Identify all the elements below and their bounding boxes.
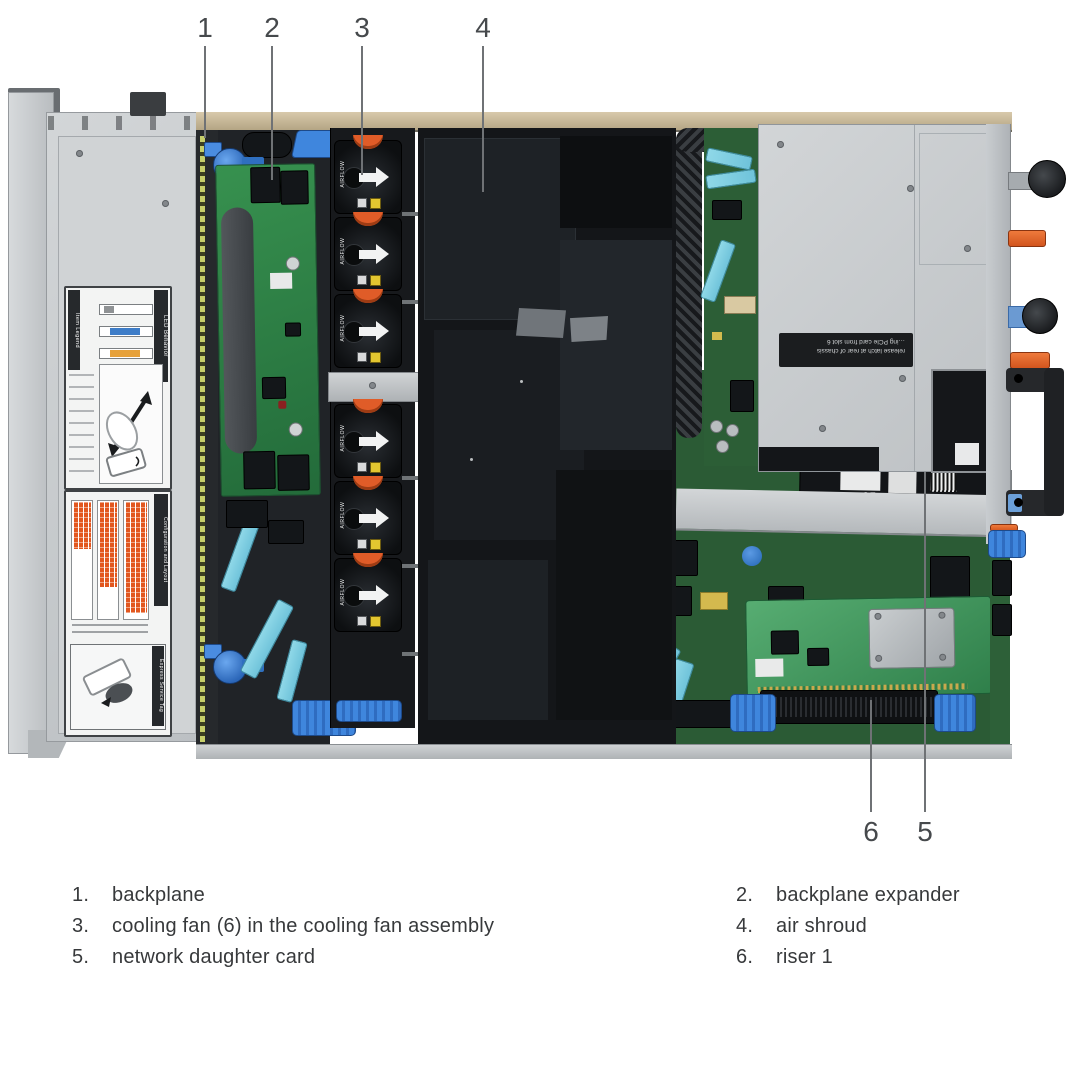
leader-line-1 <box>204 46 206 138</box>
legend-number: 5. <box>72 946 112 969</box>
item-legend-title: Item Legend <box>74 313 80 348</box>
sas-connector <box>243 451 276 490</box>
board-standoff-blue <box>742 546 762 566</box>
cage-screw <box>964 245 971 252</box>
heatsink-screw <box>938 612 945 619</box>
component <box>712 332 722 340</box>
legend-left-column: 1. backplane 3. cooling fan (6) in the c… <box>72 884 494 969</box>
cage-seam <box>914 125 915 471</box>
card-screw <box>286 256 300 270</box>
cage-instruction-line1: release latch at rear of chassis <box>787 346 905 355</box>
capacitor <box>716 440 729 453</box>
airflow-arrowhead-icon <box>376 508 389 528</box>
handle-screw <box>1014 498 1023 507</box>
cage-screw <box>777 141 784 148</box>
info-label-led-behavior: LED Behavior Item Legend <box>64 286 172 490</box>
riser-cage-latch <box>988 530 1026 558</box>
warning-label <box>370 275 381 286</box>
cooling-fan-5: AIRFLOW <box>334 481 402 555</box>
item-legend-header: Item Legend <box>68 290 80 370</box>
cooling-fan-4: AIRFLOW <box>334 404 402 478</box>
info-label <box>357 616 367 626</box>
connector-block <box>712 200 742 220</box>
storage-controller-card <box>745 596 993 698</box>
legend-number: 4. <box>736 915 776 938</box>
chipset <box>930 556 970 600</box>
leader-line-3 <box>361 46 363 175</box>
airflow-label: AIRFLOW <box>340 231 346 271</box>
sas-connector <box>277 454 310 491</box>
legend-number: 6. <box>736 946 776 969</box>
shroud-dot <box>470 458 473 461</box>
legend-item-4: 4. air shroud <box>736 915 960 938</box>
config-layout-header: Configuration and Layout <box>154 494 168 606</box>
backplane-expander-card <box>215 163 321 497</box>
slot-pins <box>765 697 933 717</box>
riser-bay-opening <box>931 369 991 473</box>
fan-release-latch <box>353 553 383 567</box>
service-tag-art <box>71 645 151 727</box>
power-connector <box>700 592 728 610</box>
shroud-clip <box>516 308 566 338</box>
warning-label <box>370 616 381 627</box>
shroud-panel <box>560 136 672 228</box>
psu-handle-knob <box>1022 298 1058 334</box>
fan-release-latch <box>353 399 383 413</box>
callout-number-2: 2 <box>264 12 280 44</box>
legend-text: backplane expander <box>776 884 960 907</box>
fan-release-latch <box>353 476 383 490</box>
rear-port <box>992 560 1012 596</box>
board-cable <box>705 169 756 190</box>
callout-number-5: 5 <box>917 816 933 848</box>
fan-release-latch <box>353 289 383 303</box>
cage-screw <box>899 375 906 382</box>
cooling-fan-6: AIRFLOW <box>334 558 402 632</box>
heatsink-screw <box>939 654 946 661</box>
drive-config-dots <box>73 502 91 549</box>
rear-port <box>992 604 1012 636</box>
legend-text: backplane <box>112 884 205 907</box>
cooling-fan-2: AIRFLOW <box>334 217 402 291</box>
connector-block <box>268 520 304 544</box>
fan-cage-bracket <box>328 372 422 402</box>
board-connector <box>724 296 756 314</box>
shroud-panel <box>428 560 548 720</box>
cooling-fan-1: AIRFLOW <box>334 140 402 214</box>
riser-1-slot <box>760 690 938 724</box>
ic-chip <box>771 630 799 654</box>
ndc-label <box>888 471 916 493</box>
led-segment-blue <box>110 328 140 335</box>
legend-item-2: 2. backplane expander <box>736 884 960 907</box>
legend-text: air shroud <box>776 915 867 938</box>
warning-label <box>370 462 381 473</box>
card-label <box>270 273 292 289</box>
heatsink-screw <box>875 655 882 662</box>
riser-release-latch <box>934 694 976 732</box>
panel-top-screw-row <box>48 116 200 130</box>
sas-connector <box>250 167 281 204</box>
handle-screw <box>1014 374 1023 383</box>
air-shroud <box>418 128 676 748</box>
fan-release-latch <box>353 212 383 226</box>
airflow-label: AIRFLOW <box>340 572 346 612</box>
callout-number-6: 6 <box>863 816 879 848</box>
airflow-arrowhead-icon <box>376 244 389 264</box>
component <box>278 401 286 409</box>
hand-diagram <box>99 364 163 484</box>
card-screw <box>289 422 303 436</box>
legend-number: 2. <box>736 884 776 907</box>
panel-top-notch <box>130 92 166 116</box>
callout-number-4: 4 <box>475 12 491 44</box>
airflow-arrowhead-icon <box>376 167 389 187</box>
drive-config-grid-1 <box>71 500 93 620</box>
drive-config-dots <box>125 502 147 613</box>
item-legend-list <box>69 374 94 480</box>
info-label-configuration: Configuration and Layout Express Service… <box>64 490 172 737</box>
release-tab-orange <box>1008 230 1046 247</box>
cage-instruction-line2: …ing PCIe card from slot 6 <box>787 337 905 346</box>
airflow-arrow-icon <box>359 327 376 336</box>
board-cable <box>700 239 736 303</box>
cage-screw <box>907 185 914 192</box>
riser-cage-sill <box>676 488 1013 537</box>
service-tag-header: Express Service Tag <box>152 646 164 726</box>
exposed-board-strip <box>704 128 758 466</box>
legend-item-5: 5. network daughter card <box>72 946 494 969</box>
callout-number-3: 3 <box>354 12 370 44</box>
callout-number-1: 1 <box>197 12 213 44</box>
led-indicator-bar-orange <box>99 348 153 359</box>
fan-cage-latch <box>336 700 402 722</box>
express-service-tag-box: Express Service Tag <box>70 644 166 730</box>
airflow-arrowhead-icon <box>376 585 389 605</box>
legend-text: cooling fan (6) in the cooling fan assem… <box>112 915 494 938</box>
airflow-arrow-icon <box>359 437 376 446</box>
legend-number: 3. <box>72 915 112 938</box>
shroud-panel <box>556 470 672 720</box>
shroud-panel <box>560 240 672 450</box>
fan-assembly-rail <box>402 128 418 728</box>
airflow-arrow-icon <box>359 591 376 600</box>
cooling-fan-3: AIRFLOW <box>334 294 402 368</box>
capacitor <box>710 420 723 433</box>
info-label <box>357 275 367 285</box>
qr-label <box>955 443 979 465</box>
airflow-label: AIRFLOW <box>340 418 346 458</box>
airflow-label: AIRFLOW <box>340 495 346 535</box>
ic-chip <box>285 322 301 336</box>
fan-release-latch <box>353 135 383 149</box>
bracket-screw <box>369 382 376 389</box>
legend-text: network daughter card <box>112 946 315 969</box>
leader-line-5 <box>924 472 926 812</box>
panel-screw <box>76 150 83 157</box>
drive-config-grid-3 <box>123 500 149 620</box>
drive-config-grid-2 <box>97 500 119 620</box>
led-segment-orange <box>110 350 140 357</box>
leader-line-6 <box>870 700 872 812</box>
led-segment <box>104 306 114 313</box>
cage-instruction-label: release latch at rear of chassis …ing PC… <box>779 333 913 367</box>
info-label <box>357 198 367 208</box>
leader-line-4 <box>482 46 484 192</box>
drive-config-dots <box>99 502 117 587</box>
figure-page: LED Behavior Item Legend <box>0 0 1080 1080</box>
airflow-arrow-icon <box>359 514 376 523</box>
capacitor <box>726 424 739 437</box>
psu-cage: release latch at rear of chassis …ing PC… <box>758 124 1010 472</box>
ic-chip <box>807 648 829 666</box>
airflow-label: AIRFLOW <box>340 154 346 194</box>
cage-screw <box>819 425 826 432</box>
warning-label <box>370 198 381 209</box>
warning-label <box>370 352 381 363</box>
psu-handle-knob <box>1028 160 1066 198</box>
bottom-chassis-rim <box>196 744 1012 759</box>
legend-item-3: 3. cooling fan (6) in the cooling fan as… <box>72 915 494 938</box>
info-label <box>357 352 367 362</box>
legend-item-6: 6. riser 1 <box>736 946 960 969</box>
handle-grip <box>1044 368 1064 516</box>
info-label <box>357 539 367 549</box>
airflow-label: AIRFLOW <box>340 308 346 348</box>
connector-block <box>730 380 754 412</box>
board-cable <box>705 147 753 170</box>
shroud-dot <box>520 380 523 383</box>
led-indicator-bar <box>99 304 153 315</box>
leader-line-2 <box>271 46 273 180</box>
ic-chip <box>262 377 286 399</box>
shroud-panel <box>424 138 576 320</box>
airflow-arrowhead-icon <box>376 431 389 451</box>
led-behavior-title: LED Behavior <box>162 315 168 357</box>
chassis-carry-handle <box>1006 366 1066 518</box>
card-label <box>755 658 783 676</box>
info-label <box>357 462 367 472</box>
shroud-clip <box>570 316 608 342</box>
riser-release-latch <box>730 694 776 732</box>
braided-cable <box>676 128 702 438</box>
card-guide-rail <box>221 207 257 454</box>
legend-item-1: 1. backplane <box>72 884 494 907</box>
cage-shadow <box>759 447 879 471</box>
cage-instruction-text: release latch at rear of chassis …ing PC… <box>779 333 913 359</box>
legend-text: riser 1 <box>776 946 833 969</box>
legend-right-column: 2. backplane expander 4. air shroud 6. r… <box>736 884 960 969</box>
hand-diagram-art <box>100 365 162 483</box>
panel-screw <box>162 200 169 207</box>
config-layout-title: Configuration and Layout <box>162 517 168 582</box>
airflow-arrow-icon <box>359 250 376 259</box>
connector-block <box>226 500 268 528</box>
config-footnotes <box>72 624 148 638</box>
warning-label <box>370 539 381 550</box>
sas-connector <box>280 170 309 204</box>
led-indicator-bar-blue <box>99 326 153 337</box>
service-tag-title: Express Service Tag <box>158 659 164 712</box>
legend-number: 1. <box>72 884 112 907</box>
airflow-arrowhead-icon <box>376 321 389 341</box>
